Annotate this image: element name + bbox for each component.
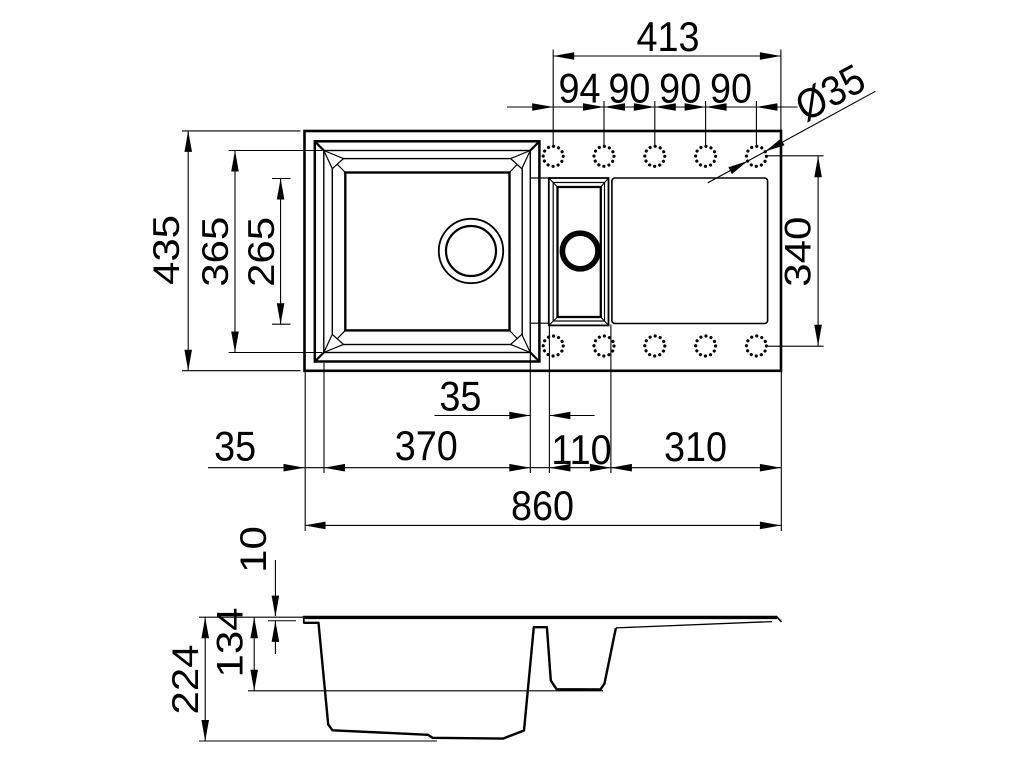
svg-text:310: 310 — [664, 424, 727, 470]
svg-text:413: 413 — [636, 14, 699, 60]
svg-text:94: 94 — [558, 66, 600, 112]
svg-text:Ø35: Ø35 — [788, 56, 873, 131]
svg-text:340: 340 — [778, 217, 819, 287]
svg-text:860: 860 — [511, 483, 574, 529]
svg-text:90: 90 — [659, 66, 701, 112]
svg-text:90: 90 — [710, 66, 752, 112]
svg-text:110: 110 — [551, 427, 611, 473]
svg-text:35: 35 — [214, 424, 256, 470]
svg-text:365: 365 — [196, 217, 237, 287]
svg-text:265: 265 — [241, 217, 282, 287]
svg-text:10: 10 — [234, 526, 275, 573]
svg-text:35: 35 — [439, 374, 481, 420]
svg-text:435: 435 — [146, 215, 187, 285]
svg-text:134: 134 — [210, 607, 251, 677]
svg-text:224: 224 — [166, 644, 207, 714]
svg-text:90: 90 — [608, 66, 650, 112]
svg-text:370: 370 — [395, 423, 458, 469]
